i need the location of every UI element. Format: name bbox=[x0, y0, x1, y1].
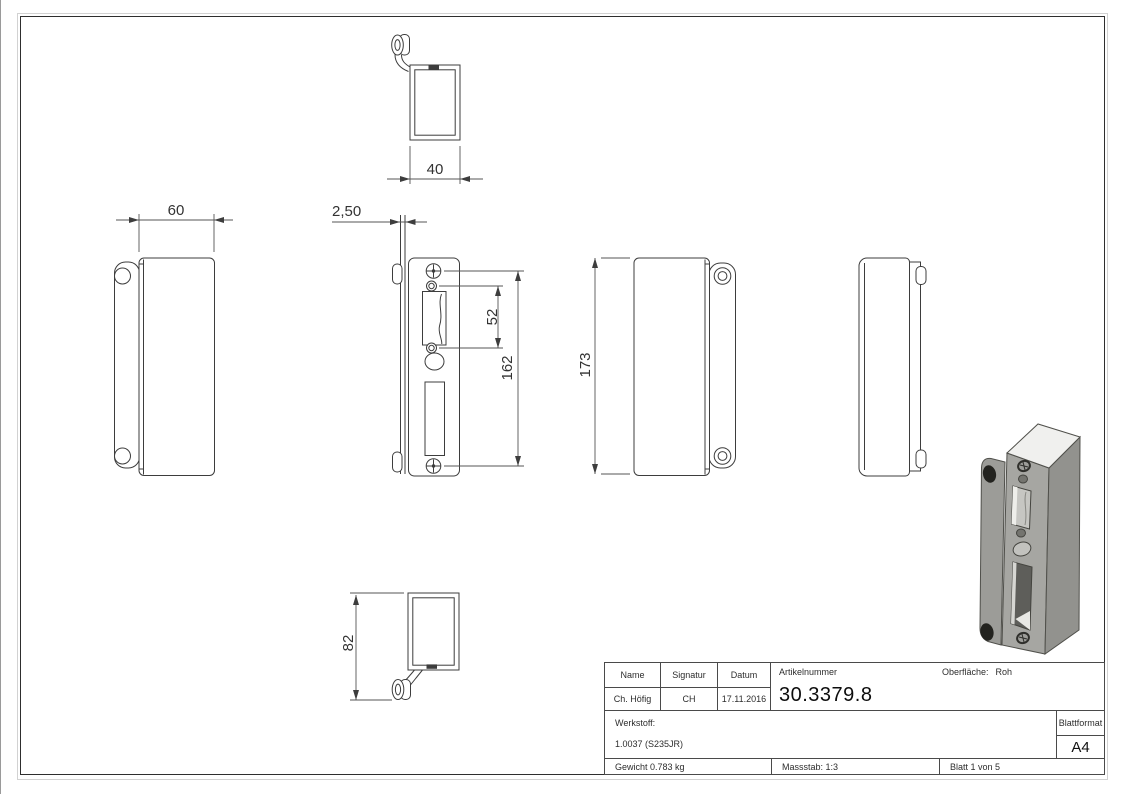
iso-right-face bbox=[1045, 437, 1080, 654]
latch-opening bbox=[423, 292, 447, 346]
countersunk-hole-top bbox=[714, 268, 731, 285]
signature-value-cell: CH bbox=[661, 688, 718, 711]
material-cell: Werkstoff: 1.0037 (S235JR) bbox=[605, 711, 1057, 759]
surface-value: Roh bbox=[996, 667, 1013, 677]
screw-top bbox=[426, 264, 441, 279]
material-value: 1.0037 (S235JR) bbox=[615, 739, 683, 749]
right-side-view bbox=[859, 258, 926, 476]
iso-lower-opening bbox=[1011, 562, 1032, 630]
sheet-format-label-cell: Blattformat bbox=[1057, 711, 1104, 736]
date-value-cell: 17.11.2016 bbox=[718, 688, 771, 711]
material-label: Werkstoff: bbox=[615, 718, 655, 728]
dim-label-162: 162 bbox=[499, 355, 516, 380]
screw-bottom bbox=[426, 459, 441, 474]
isometric-view bbox=[979, 424, 1080, 654]
back-view bbox=[634, 258, 736, 476]
dimension-plate-thickness: 2,50 bbox=[332, 203, 427, 225]
surface-field: Oberfläche:Roh bbox=[942, 667, 1019, 677]
countersunk-hole-bottom bbox=[714, 448, 731, 465]
dim-label-52: 52 bbox=[484, 309, 501, 326]
mount-hole-top bbox=[115, 268, 131, 284]
article-number-cell: Artikelnummer Oberfläche:Roh 30.3379.8 bbox=[771, 663, 1104, 711]
left-side-view bbox=[115, 258, 215, 476]
top-view bbox=[392, 35, 460, 141]
article-number-value: 30.3379.8 bbox=[779, 684, 872, 707]
iso-flange bbox=[980, 458, 1005, 645]
drawing-sheet: 60 40 bbox=[0, 0, 1123, 794]
name-label-cell: Name bbox=[605, 663, 661, 688]
weight-cell: Gewicht 0.783 kg bbox=[605, 759, 772, 774]
scale-cell: Massstab: 1:3 bbox=[772, 759, 940, 774]
bottom-view bbox=[392, 593, 459, 700]
dimension-front-width: 60 bbox=[116, 202, 233, 252]
lower-opening bbox=[425, 382, 445, 456]
date-label-cell: Datum bbox=[718, 663, 771, 688]
dim-label-60: 60 bbox=[168, 202, 185, 219]
front-view bbox=[393, 215, 460, 476]
dim-label-40: 40 bbox=[427, 161, 444, 178]
dim-label-82: 82 bbox=[340, 635, 357, 652]
article-number-label: Artikelnummer bbox=[779, 667, 837, 677]
hook-end bbox=[392, 680, 404, 700]
dim-label-173: 173 bbox=[577, 352, 594, 377]
sheet-format-value-cell: A4 bbox=[1057, 736, 1104, 759]
hook-end bbox=[392, 35, 404, 55]
iso-latch-opening bbox=[1012, 486, 1032, 529]
mount-hole-bottom bbox=[115, 448, 131, 464]
oval-recess bbox=[425, 353, 444, 370]
surface-label: Oberfläche: bbox=[942, 667, 989, 677]
dim-label-2-50: 2,50 bbox=[332, 203, 361, 220]
title-block: Name Signatur Datum Artikelnummer Oberfl… bbox=[604, 662, 1105, 775]
signature-label-cell: Signatur bbox=[661, 663, 718, 688]
dimension-total-height: 173 bbox=[577, 258, 630, 474]
dimension-top-width: 40 bbox=[387, 146, 483, 184]
name-value-cell: Ch. Höfig bbox=[605, 688, 661, 711]
sheet-cell: Blatt 1 von 5 bbox=[940, 759, 1104, 774]
